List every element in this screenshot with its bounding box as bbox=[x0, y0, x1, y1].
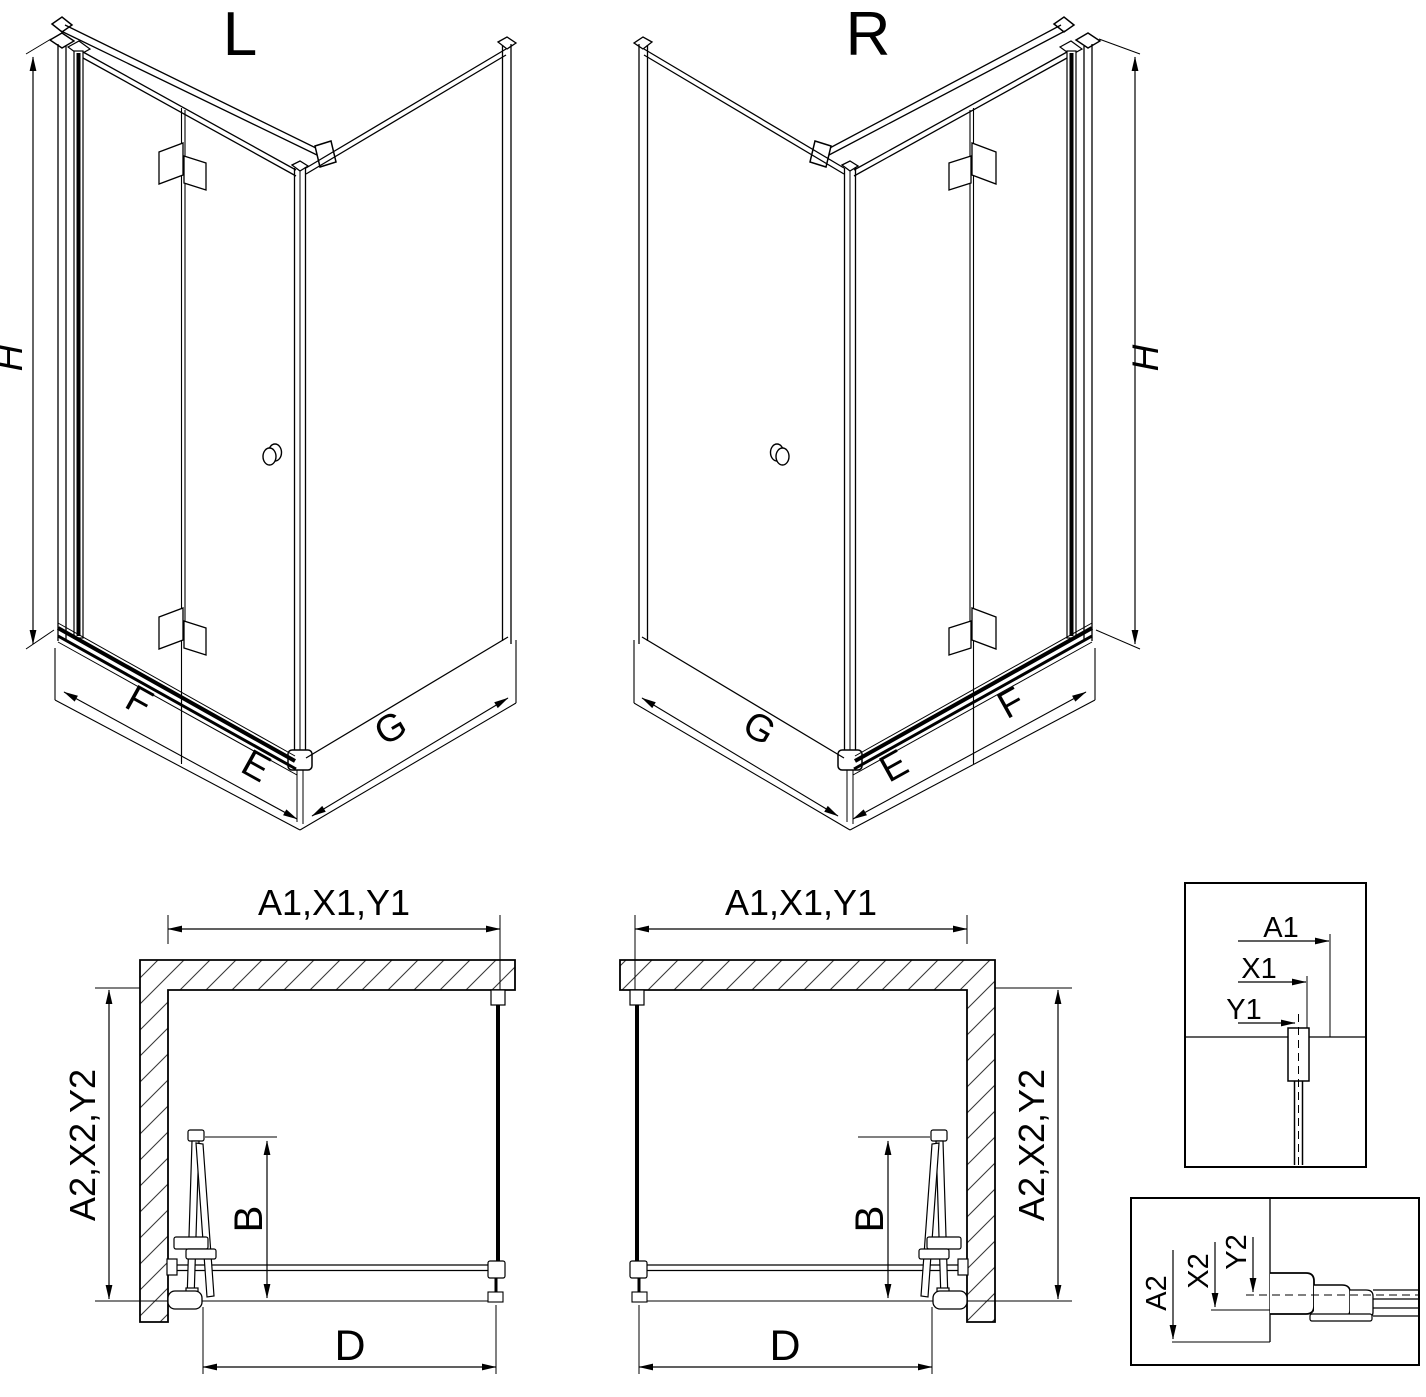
dim-label-a2: A2,X2,Y2 bbox=[1011, 1069, 1052, 1221]
dim-label-d: D bbox=[334, 1322, 365, 1370]
dim-label-a2: A2,X2,Y2 bbox=[62, 1069, 103, 1221]
variant-label-right: R bbox=[846, 0, 891, 69]
shower-enclosure-diagram: L bbox=[0, 0, 1426, 1397]
dim-label-h: H bbox=[0, 344, 30, 371]
detail-box-bottom: A2 X2 Y2 bbox=[1131, 1198, 1419, 1365]
dim-label-x2: X2 bbox=[1183, 1253, 1215, 1288]
dim-label-a1: A1,X1,Y1 bbox=[725, 882, 877, 923]
dim-label-y1: Y1 bbox=[1226, 994, 1261, 1026]
dim-label-b: B bbox=[848, 1206, 892, 1233]
background bbox=[0, 0, 1426, 1397]
dim-label-h: H bbox=[1125, 344, 1166, 371]
dim-label-y2: Y2 bbox=[1221, 1234, 1253, 1269]
detail-box-top: A1 X1 Y1 bbox=[1185, 883, 1366, 1167]
dim-label-a2: A2 bbox=[1141, 1275, 1173, 1310]
dim-label-x1: X1 bbox=[1241, 953, 1276, 985]
dim-label-a1: A1 bbox=[1263, 912, 1298, 944]
dim-label-a1: A1,X1,Y1 bbox=[258, 882, 410, 923]
dim-label-d: D bbox=[769, 1322, 800, 1370]
variant-label-left: L bbox=[223, 0, 257, 69]
dim-label-b: B bbox=[227, 1206, 271, 1233]
technical-drawing-page: L bbox=[0, 0, 1426, 1397]
